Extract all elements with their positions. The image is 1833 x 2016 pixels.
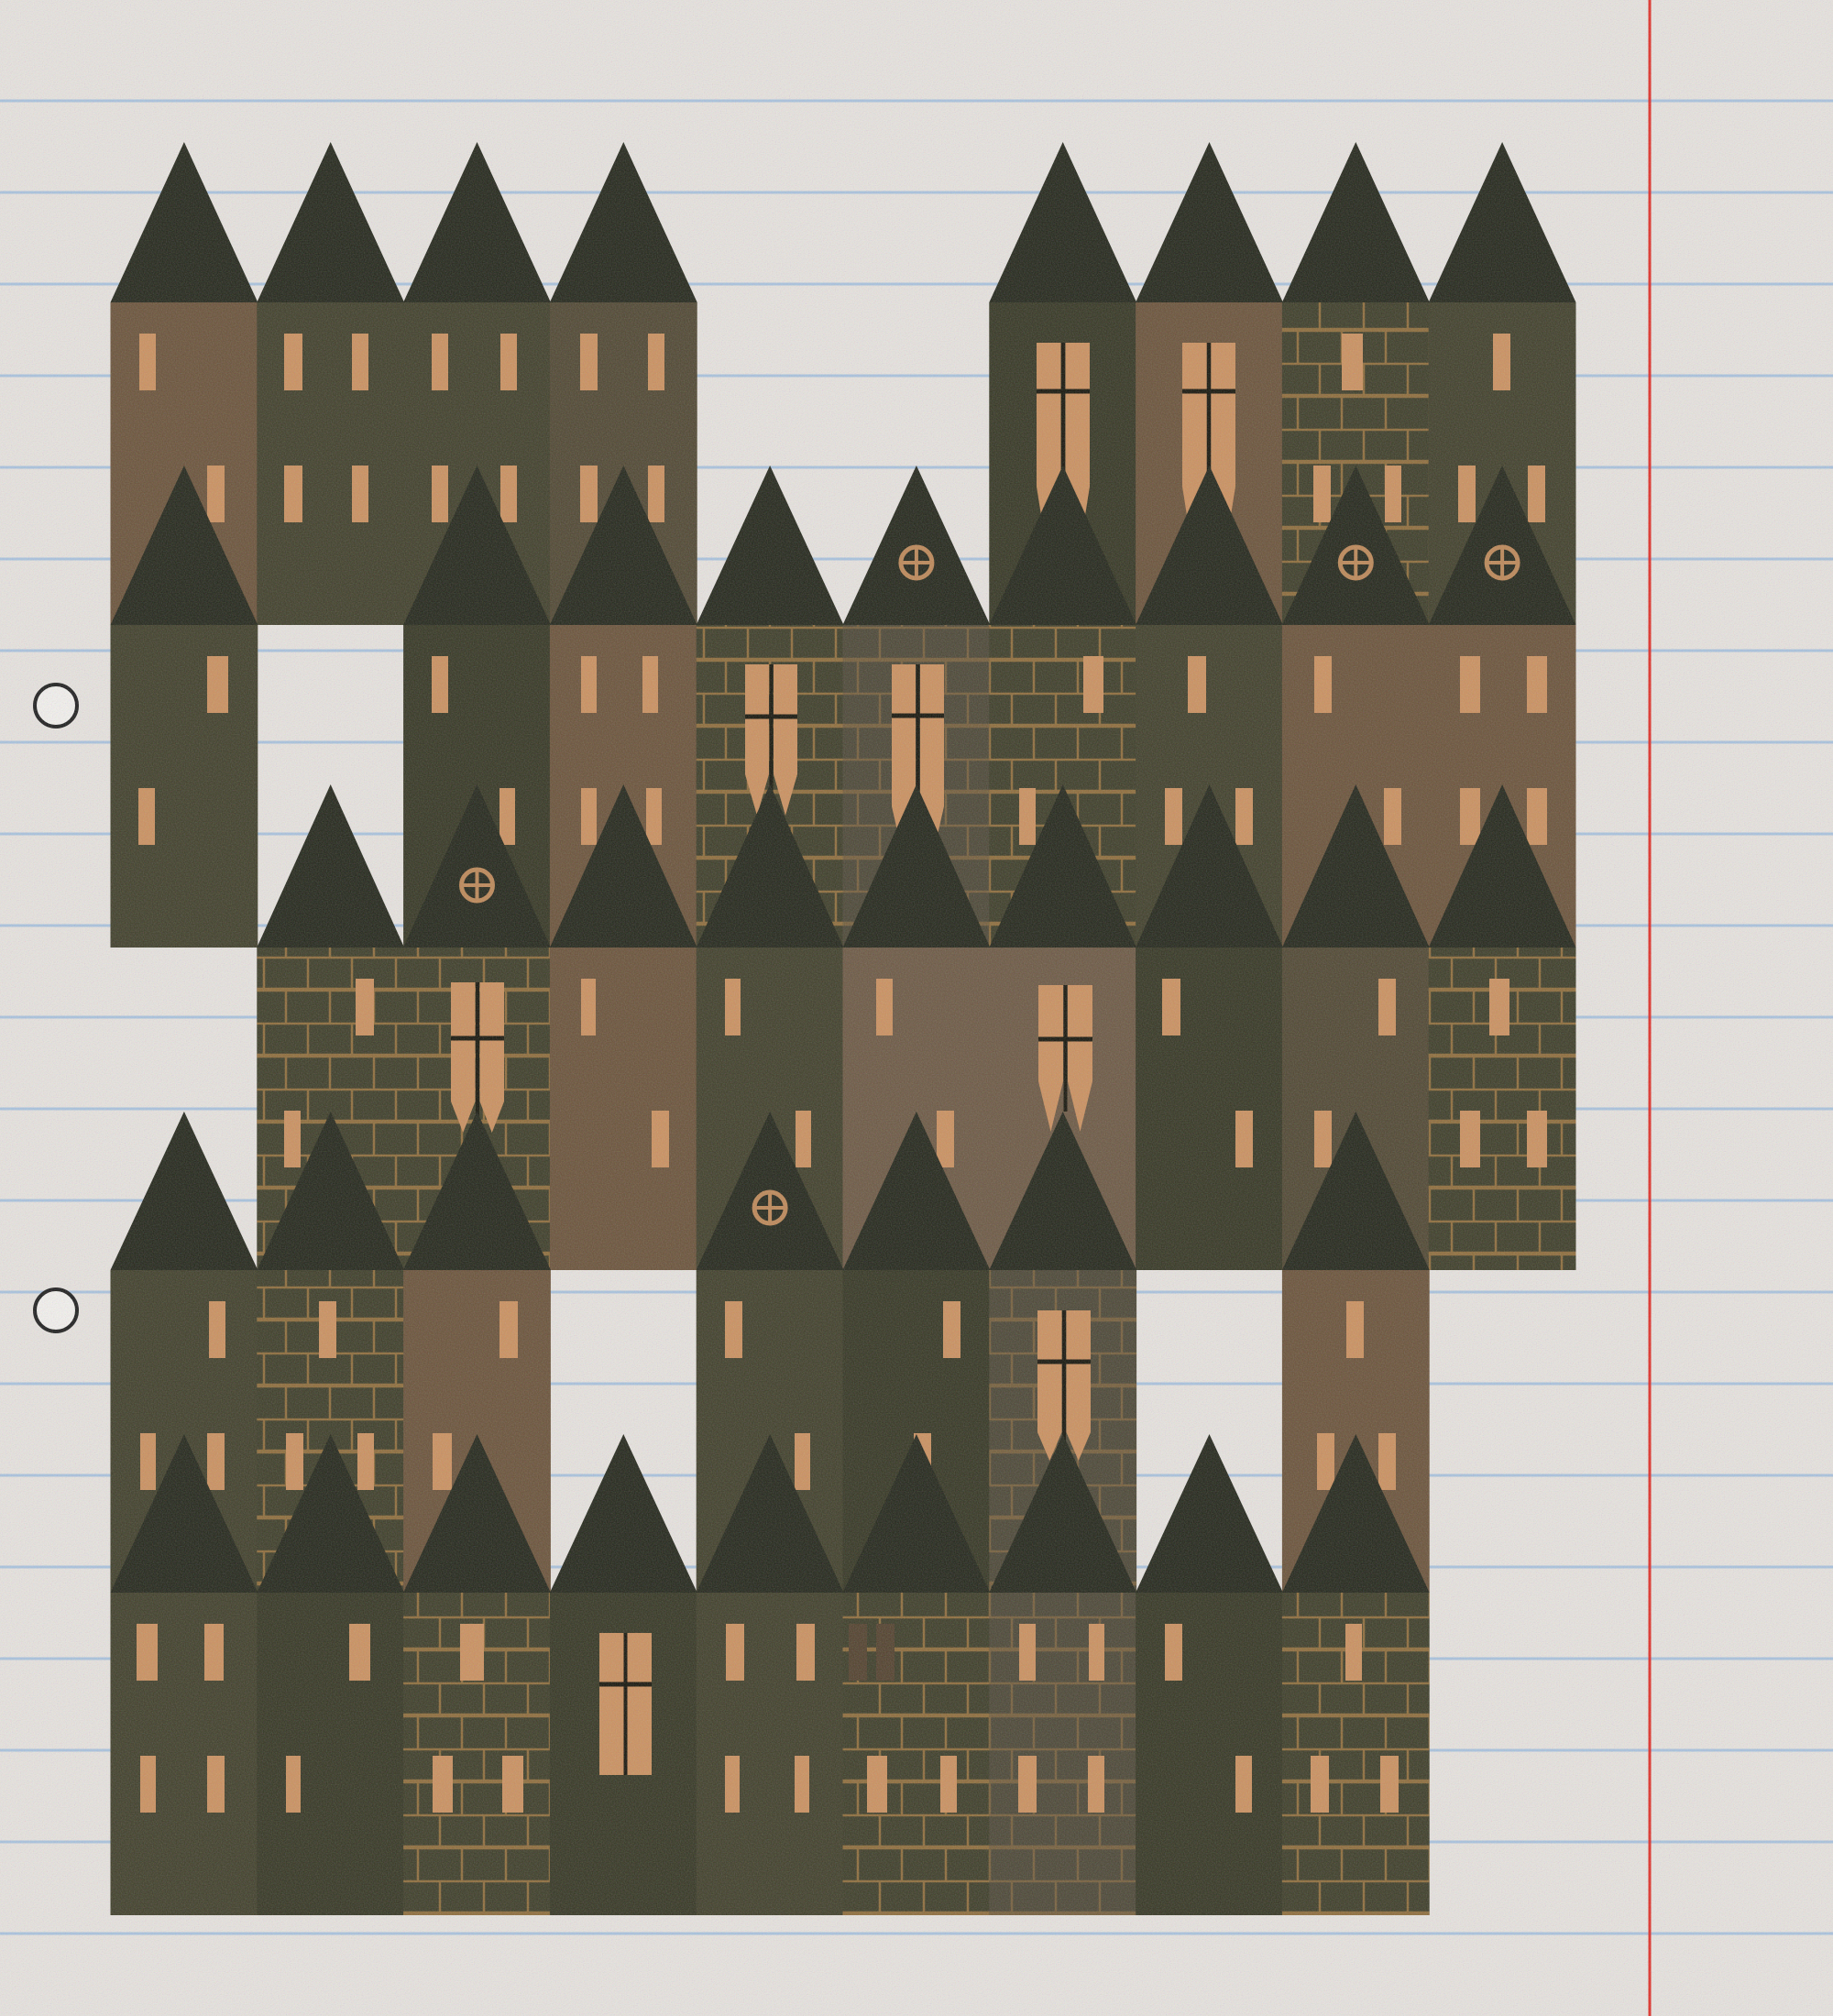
paper-canvas	[0, 0, 1833, 2016]
notebook-illustration	[0, 0, 1833, 2016]
film-grain-overlay	[0, 0, 1833, 2016]
